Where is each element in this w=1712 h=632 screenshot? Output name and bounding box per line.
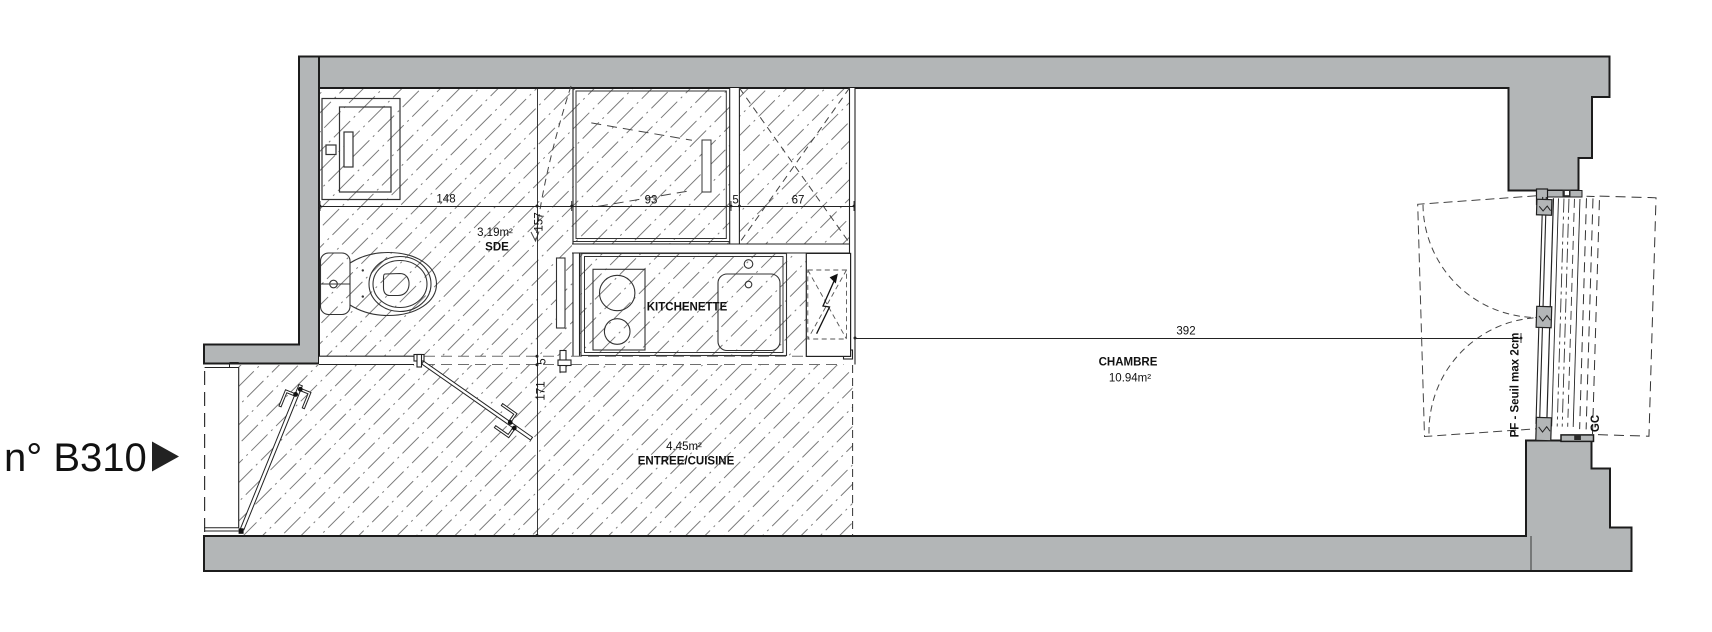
- svg-text:n° B310: n° B310: [4, 436, 147, 480]
- svg-text:4.45m²: 4.45m²: [666, 441, 702, 453]
- svg-text:171: 171: [536, 381, 548, 400]
- svg-text:PF - Seuil max 2cm: PF - Seuil max 2cm: [1510, 333, 1522, 438]
- svg-text:5: 5: [537, 358, 549, 364]
- svg-text:5: 5: [732, 195, 738, 207]
- svg-text:3.19m²: 3.19m²: [477, 227, 513, 239]
- svg-text:67: 67: [792, 195, 805, 207]
- svg-text:GC: GC: [1590, 415, 1602, 432]
- svg-text:93: 93: [645, 195, 658, 207]
- svg-text:157: 157: [534, 212, 546, 231]
- svg-text:SDE: SDE: [485, 242, 509, 254]
- svg-text:KITCHENETTE: KITCHENETTE: [647, 302, 728, 314]
- svg-text:CHAMBRE: CHAMBRE: [1099, 357, 1158, 369]
- svg-text:10.94m²: 10.94m²: [1109, 373, 1151, 385]
- svg-text:148: 148: [436, 194, 455, 206]
- svg-text:ENTREE/CUISINE: ENTREE/CUISINE: [638, 456, 735, 468]
- svg-text:392: 392: [1176, 326, 1195, 338]
